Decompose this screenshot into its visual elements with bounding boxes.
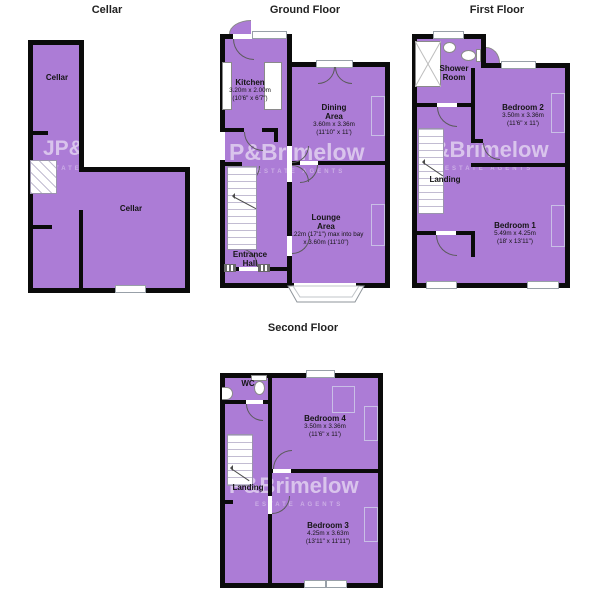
wall-segment [220, 583, 383, 588]
room-label-bedroom3: Bedroom 3 4.25m x 3.63m (13'11" x 11'11"… [288, 521, 368, 545]
room-label-bedroom4: Bedroom 4 3.50m x 3.36m (11'6" x 11') [290, 414, 360, 438]
door-opening [273, 469, 291, 473]
room-label-wc: WC [234, 379, 262, 388]
wall-segment [220, 373, 383, 378]
chimney-breast [364, 406, 378, 441]
staircase [227, 434, 253, 486]
wall-segment [268, 373, 272, 404]
wall-segment [220, 373, 225, 588]
wall-segment [378, 373, 383, 588]
second-floor-plan: P&Brimelow ESTATE AGENTS WC Landing Bedr… [0, 0, 600, 600]
window [306, 370, 335, 378]
room-label-landing: Landing [221, 483, 275, 492]
window [326, 580, 347, 588]
window [304, 580, 326, 588]
stair-arrow-head [227, 465, 233, 471]
furniture-outline [332, 386, 355, 413]
floorplan-page: { "watermark": { "cellar_text": "JP&", "… [0, 0, 600, 600]
wall-segment [220, 500, 233, 504]
wall-segment [268, 404, 272, 469]
